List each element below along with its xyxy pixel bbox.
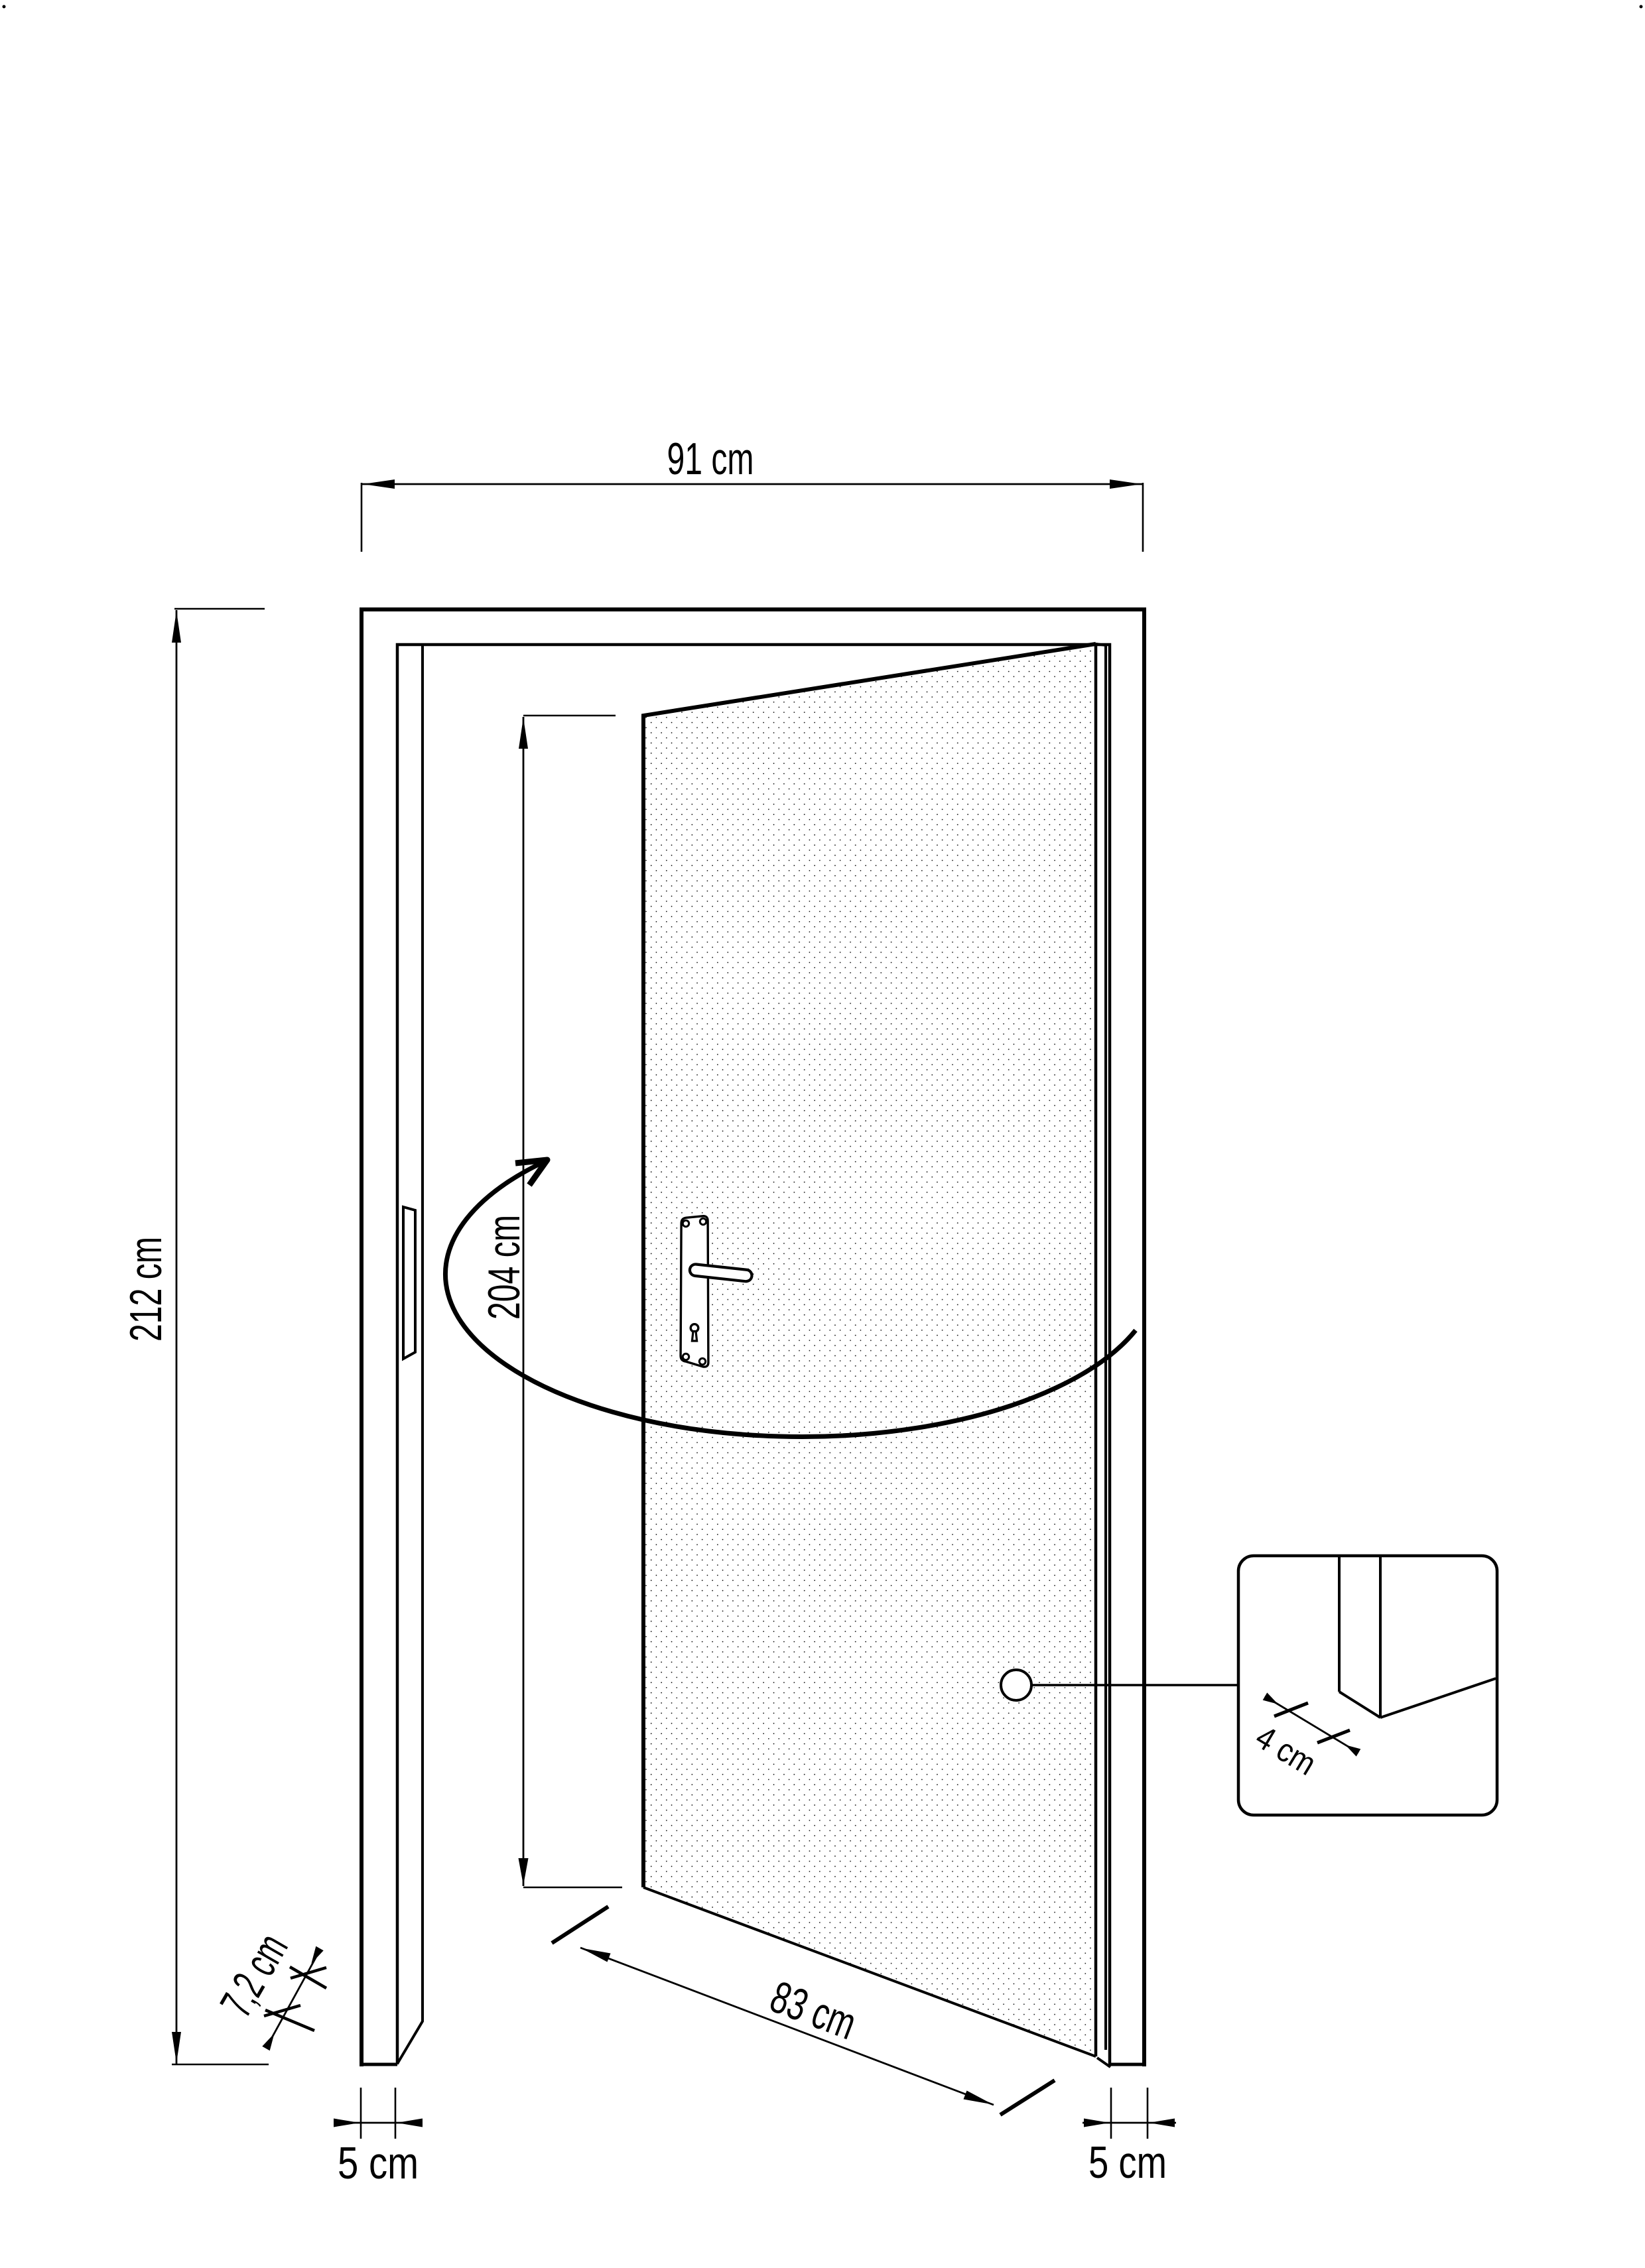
svg-text:91 cm: 91 cm [667, 434, 754, 484]
svg-text:204 cm: 204 cm [479, 1215, 529, 1320]
svg-text:5 cm: 5 cm [1088, 2137, 1167, 2188]
svg-text:212 cm: 212 cm [121, 1237, 171, 1342]
svg-text:5 cm: 5 cm [338, 2138, 419, 2188]
